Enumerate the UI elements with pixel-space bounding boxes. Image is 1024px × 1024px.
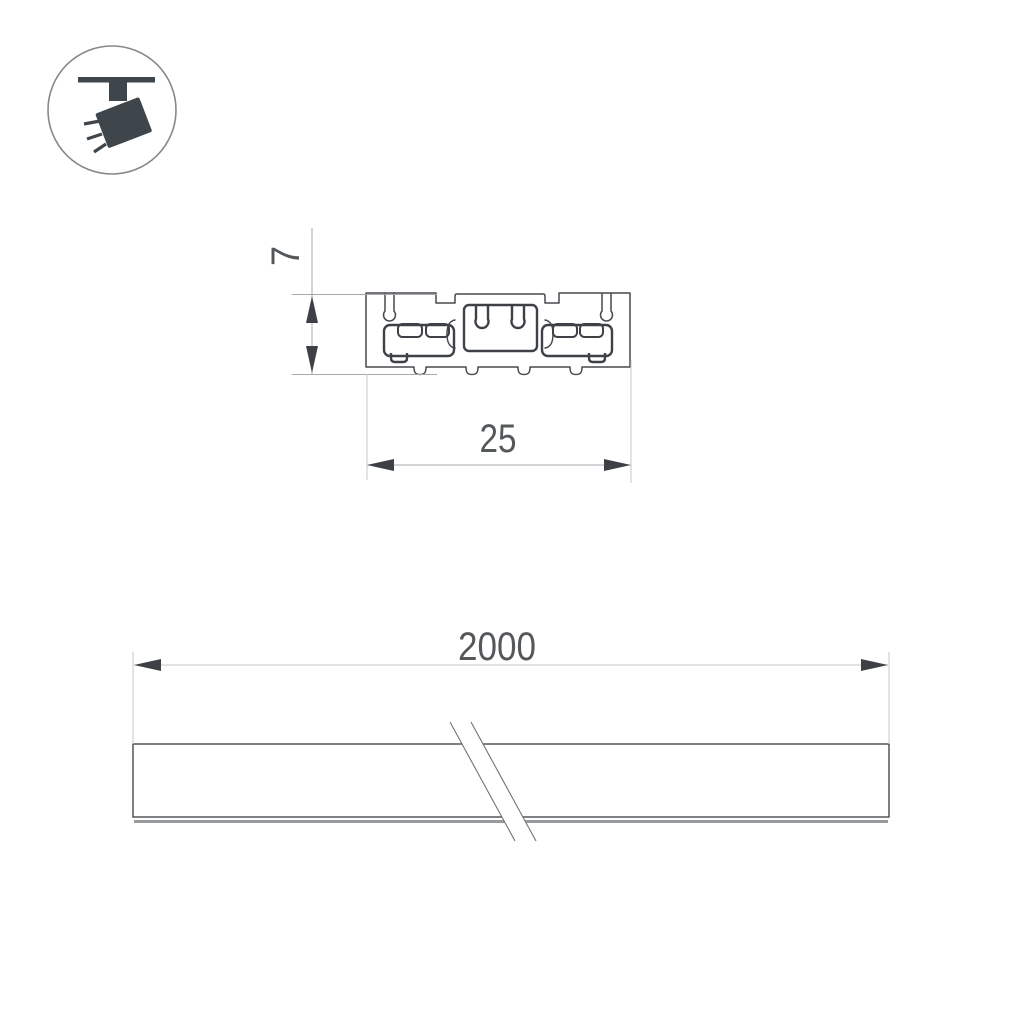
height-value: 7 [264,246,308,266]
arrowhead-left [367,459,394,471]
track-spotlight-icon [48,46,176,174]
left-compartment-tab [391,353,407,362]
right-wing-hook [601,294,613,321]
dimension-width: 25 [367,360,631,483]
technical-drawing-page: 7 25 2000 [0,0,1024,1024]
arrowhead-right [604,459,631,471]
center-right-hook [512,306,525,328]
length-value: 2000 [458,625,536,669]
technical-drawing-canvas: 7 25 2000 [0,0,1024,1024]
width-value: 25 [480,417,517,461]
arrowhead-right [861,659,888,671]
fixture-stem-shape [109,82,127,101]
left-busbar-compartment [384,325,454,356]
track-bar-shape [78,77,155,83]
dimension-length: 2000 [133,625,889,744]
cross-section-view [366,293,630,375]
side-view [133,722,889,841]
center-left-hook [476,306,489,328]
arrowhead-down [306,346,318,373]
arrowhead-up [306,296,318,323]
left-wing-hook [384,294,396,321]
arrowhead-left [134,659,161,671]
dimension-height: 7 [264,228,437,375]
right-compartment-tab [589,353,605,362]
